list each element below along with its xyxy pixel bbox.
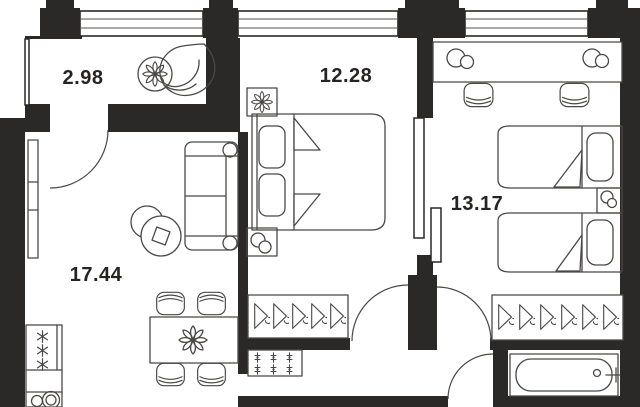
wall-balcony-top bbox=[25, 36, 82, 39]
window-balcony bbox=[80, 11, 203, 36]
room-area-label-bedroom: 12.28 bbox=[320, 65, 373, 87]
windows bbox=[80, 11, 588, 36]
wall-balcony-bedroom bbox=[206, 38, 240, 132]
wall-bedrooms-stub bbox=[408, 275, 437, 350]
floor-plan: 2.98 12.28 13.17 17.44 bbox=[0, 0, 640, 407]
kids-wardrobe bbox=[492, 295, 623, 340]
wall-bedrooms-top bbox=[417, 38, 433, 118]
wall-balcony-bottom-east bbox=[108, 104, 206, 132]
wall-bedroom-south bbox=[238, 338, 350, 350]
room-area-label-kids-room: 13.17 bbox=[451, 193, 504, 215]
wall-bottom-east bbox=[493, 396, 640, 407]
shoe-cabinet bbox=[248, 350, 302, 376]
room-area-label-living: 17.44 bbox=[70, 264, 123, 286]
wall-balcony-bottom-west bbox=[25, 104, 50, 132]
wall-bottom-west bbox=[238, 396, 448, 407]
window-bedroom bbox=[238, 11, 398, 36]
balcony-plant bbox=[138, 57, 172, 91]
wall-left bbox=[0, 118, 25, 407]
wall-pier-4 bbox=[588, 8, 640, 38]
floor-plan-drawing: 2.98 12.28 13.17 17.44 bbox=[0, 0, 640, 407]
partition-balcony-west bbox=[25, 39, 29, 105]
room-area-label-balcony: 2.98 bbox=[63, 67, 104, 89]
partition-bedrooms-1 bbox=[414, 118, 424, 238]
wall-pier-3 bbox=[398, 8, 465, 38]
window-kids-room bbox=[465, 11, 588, 36]
wall-pier-1 bbox=[40, 8, 80, 38]
partition-bedrooms-2 bbox=[431, 208, 441, 262]
wall-pier-2 bbox=[203, 8, 238, 38]
hall-wardrobe bbox=[248, 295, 348, 338]
wall-right bbox=[620, 38, 640, 407]
